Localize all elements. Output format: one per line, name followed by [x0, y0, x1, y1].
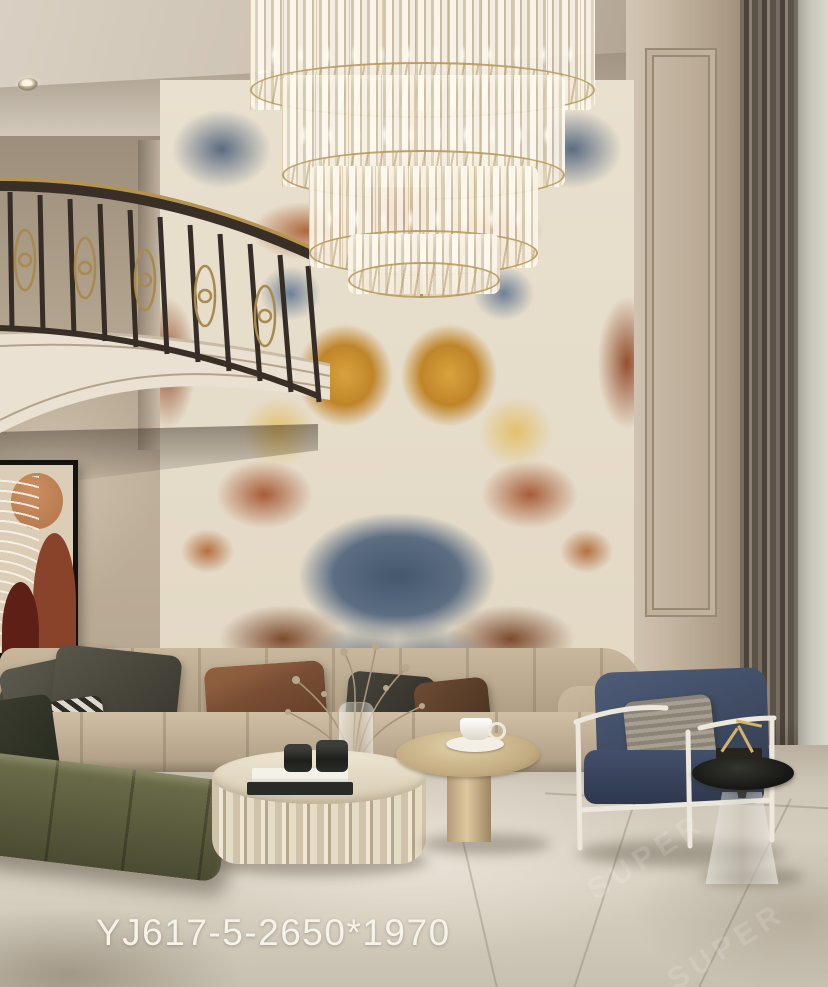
glass-table-black-top	[692, 756, 794, 790]
art-rust-arch	[33, 533, 77, 653]
balcony-railing	[0, 168, 324, 434]
coffee-cup-handle	[488, 722, 506, 740]
black-canister	[316, 740, 348, 772]
chandelier-ring-4	[348, 262, 500, 298]
dark-pleated-curtain	[740, 0, 802, 778]
living-room-photo: YJ617-5-2650*1970 SUPER SUPER	[0, 0, 828, 987]
coffee-table-book	[247, 782, 353, 795]
wall-panel-molding	[645, 48, 717, 617]
product-code-caption: YJ617-5-2650*1970	[96, 912, 451, 954]
gold-table-pedestal	[447, 770, 491, 842]
black-canister	[284, 744, 312, 772]
sheer-curtain	[798, 0, 828, 784]
abstract-wall-art	[0, 460, 78, 658]
